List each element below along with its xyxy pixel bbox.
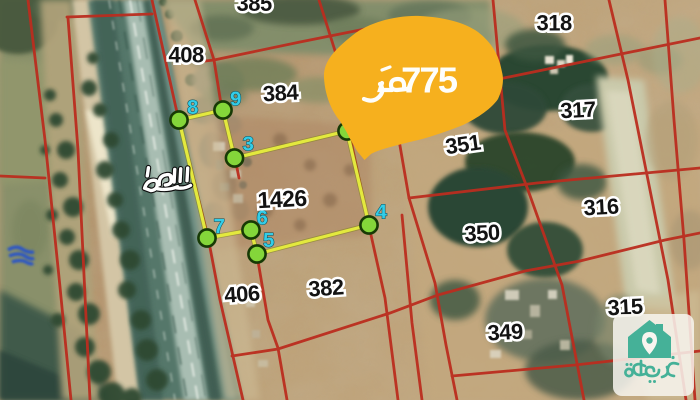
- svg-text:350: 350: [464, 220, 501, 247]
- svg-text:349: 349: [487, 319, 524, 346]
- svg-text:385: 385: [237, 0, 272, 16]
- svg-text:318: 318: [537, 11, 572, 36]
- svg-text:8: 8: [187, 96, 198, 119]
- svg-text:384: 384: [262, 80, 300, 107]
- svg-text:406: 406: [224, 280, 261, 307]
- svg-text:4: 4: [376, 201, 388, 224]
- svg-text:1426: 1426: [257, 185, 307, 214]
- svg-text:9: 9: [230, 88, 241, 111]
- svg-text:316: 316: [583, 194, 620, 221]
- svg-text:775: 775: [401, 60, 458, 101]
- svg-text:317: 317: [560, 96, 597, 123]
- svg-text:5: 5: [263, 229, 274, 252]
- svg-text:408: 408: [169, 43, 204, 68]
- svg-text:351: 351: [444, 130, 483, 160]
- svg-text:3: 3: [243, 133, 254, 156]
- svg-text:7: 7: [214, 215, 225, 238]
- svg-text:382: 382: [308, 274, 345, 301]
